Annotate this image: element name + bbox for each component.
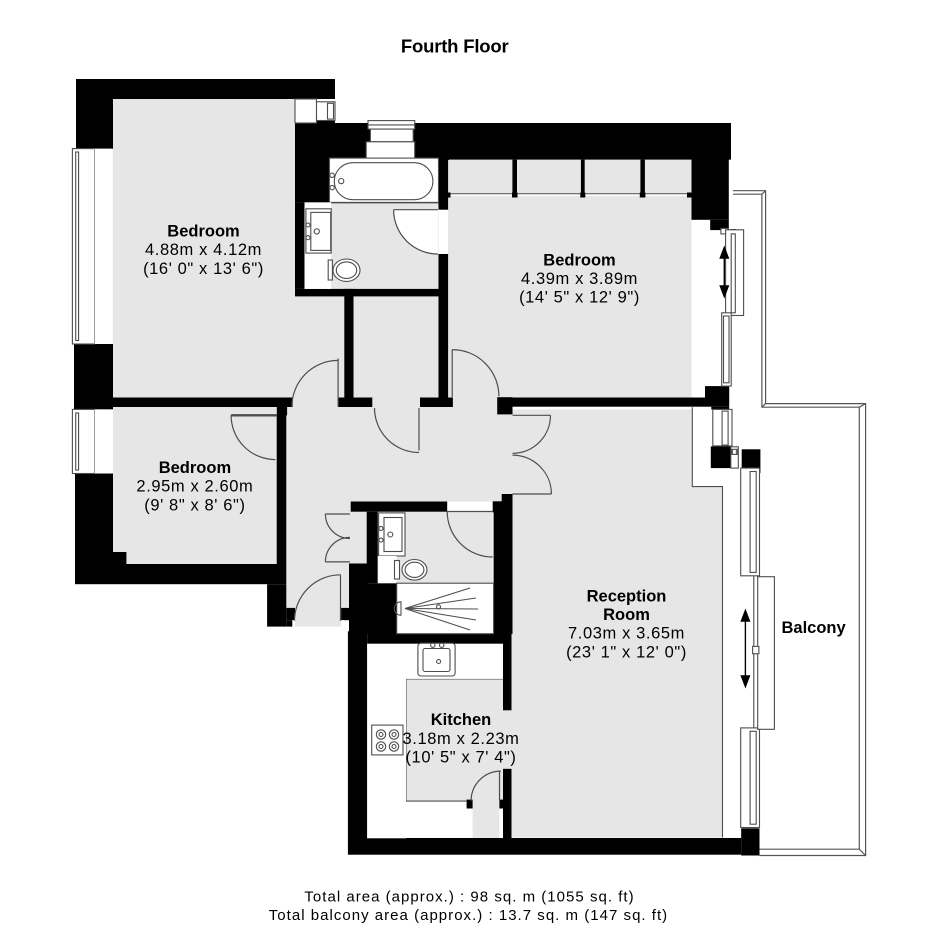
svg-text:Fourth Floor: Fourth Floor [401,36,509,57]
svg-text:3.18m x 2.23m: 3.18m x 2.23m [403,730,520,748]
svg-text:(10' 5" x 7' 4"): (10' 5" x 7' 4") [405,749,516,767]
svg-text:7.03m x 3.65m: 7.03m x 3.65m [568,625,685,643]
svg-text:2.95m x 2.60m: 2.95m x 2.60m [136,478,253,496]
svg-text:(9' 8" x 8' 6"): (9' 8" x 8' 6") [144,496,245,514]
svg-text:Bedroom: Bedroom [167,222,239,240]
svg-text:Total balcony area (approx.) :: Total balcony area (approx.) : 13.7 sq. … [269,907,668,924]
svg-text:Bedroom: Bedroom [159,459,231,477]
svg-text:(23' 1" x 12' 0"): (23' 1" x 12' 0") [566,643,687,661]
svg-text:Kitchen: Kitchen [431,711,492,729]
svg-text:Bedroom: Bedroom [543,251,615,269]
svg-text:4.88m x 4.12m: 4.88m x 4.12m [145,241,262,259]
svg-text:Total area (approx.) : 98 sq.: Total area (approx.) : 98 sq. m (1055 sq… [304,889,634,906]
svg-text:Reception: Reception [587,587,667,605]
svg-text:Balcony: Balcony [782,619,847,637]
svg-text:(14' 5" x 12' 9"): (14' 5" x 12' 9") [519,289,640,307]
svg-text:(16' 0" x 13' 6"): (16' 0" x 13' 6") [143,260,264,278]
svg-text:Room: Room [603,606,650,624]
svg-text:4.39m x 3.89m: 4.39m x 3.89m [521,270,638,288]
